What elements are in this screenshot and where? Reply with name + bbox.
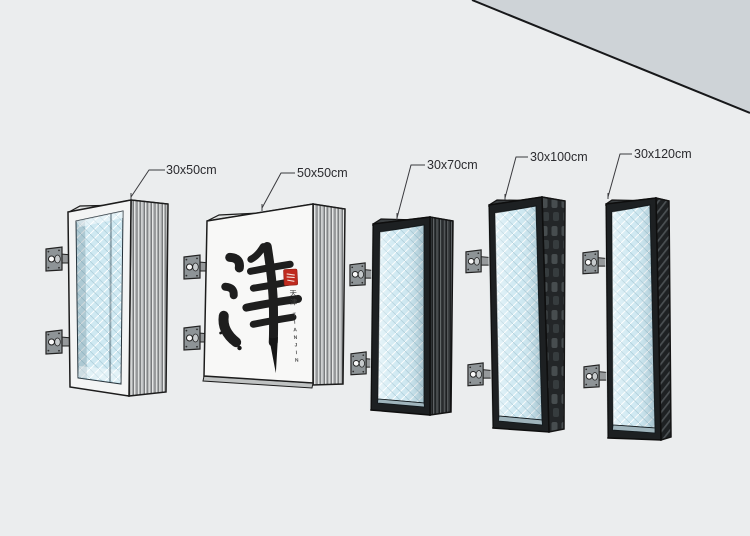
glass-sheen	[378, 225, 424, 403]
size-label-30x120: 30x120cm	[634, 147, 692, 161]
ribbed-side-face	[129, 200, 168, 396]
product-render-scene: 天津 TIANJIN	[0, 0, 750, 536]
glass-seam-line	[110, 214, 111, 382]
render-canvas: 天津 TIANJIN	[0, 0, 750, 536]
lightbox-50x50cm: 天津 TIANJIN	[184, 204, 345, 388]
ribbed-side-face	[430, 217, 453, 415]
glass-sheen	[612, 205, 655, 428]
size-label-30x70: 30x70cm	[427, 158, 478, 172]
size-label-30x100: 30x100cm	[530, 150, 588, 164]
size-label-30x50: 30x50cm	[166, 163, 217, 177]
size-label-50x50: 50x50cm	[297, 166, 348, 180]
glass-sheen	[495, 206, 542, 420]
caption-chinese: 天津	[288, 289, 298, 308]
ribbed-side-face	[313, 204, 345, 385]
